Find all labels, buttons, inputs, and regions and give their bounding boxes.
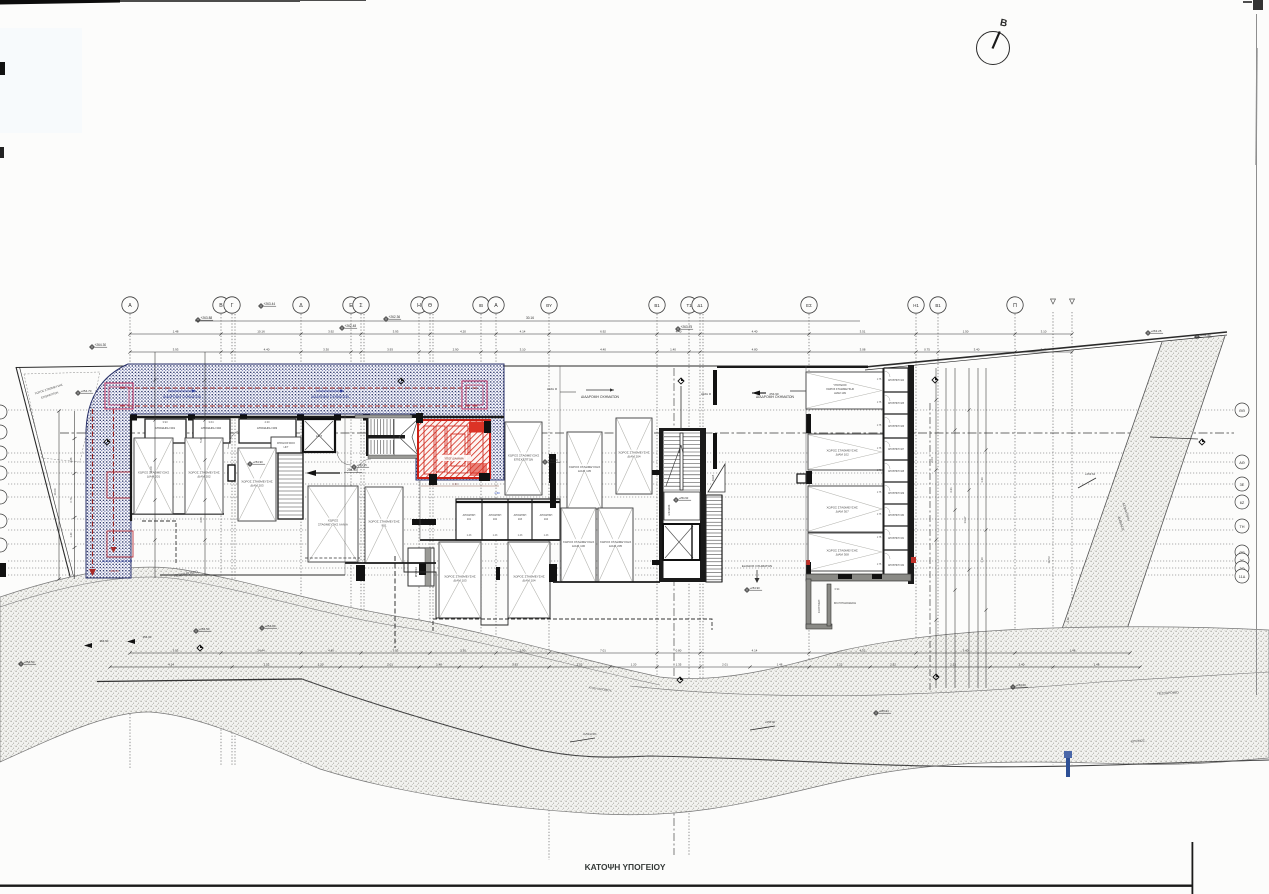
svg-text:3.30: 3.30 [323,348,329,352]
svg-text:1.43: 1.43 [518,534,523,537]
svg-text:ΚΑΤΟΨΗ ΥΠΟΓΕΙΟΥ: ΚΑΤΟΨΗ ΥΠΟΓΕΙΟΥ [585,862,666,872]
svg-text:+254.00: +254.00 [265,624,276,628]
svg-text:0.74: 0.74 [70,497,73,502]
svg-text:6Ζ: 6Ζ [1240,501,1245,505]
svg-text:Γ: Γ [231,303,234,309]
svg-text:B: B [219,303,223,309]
svg-text:1.50: 1.50 [494,491,500,495]
svg-text:103: 103 [518,518,523,521]
svg-text:ΘΥ: ΘΥ [546,303,552,308]
svg-text:ΘΕΣΗ Μ: ΘΕΣΗ Μ [547,387,557,391]
svg-text:0.75: 0.75 [924,348,930,352]
svg-text:3.40: 3.40 [963,649,969,653]
svg-text:7.01: 7.01 [600,649,606,653]
svg-text:1.75: 1.75 [877,492,882,494]
svg-text:+262.48: +262.48 [345,324,357,328]
svg-text:+263.64: +263.64 [1085,472,1096,476]
svg-text:2.52: 2.52 [264,663,270,667]
svg-text:0.94: 0.94 [835,588,840,591]
svg-text:14.67: 14.67 [963,516,967,523]
svg-text:ΑΝΕΒ: ΑΝΕΒ [712,474,715,481]
svg-text:A: A [494,303,498,309]
svg-text:4.30: 4.30 [452,482,458,486]
svg-text:ΑΠΟΘΗΚΗ 328: ΑΠΟΘΗΚΗ 328 [888,470,905,473]
svg-text:254.50: 254.50 [100,639,109,643]
svg-text:4.40: 4.40 [752,330,758,334]
svg-text:4.52: 4.52 [860,649,866,653]
svg-text:ΑΠΟΘΗΚΗ 324: ΑΠΟΘΗΚΗ 324 [888,379,905,382]
svg-text:ΕΣ: ΕΣ [806,303,812,308]
svg-text:1.40: 1.40 [670,348,676,352]
svg-text:5.60: 5.60 [199,437,203,443]
svg-text:3.92: 3.92 [328,330,334,334]
svg-text:ΔΙΑΜ 201: ΔΙΑΜ 201 [147,475,161,479]
svg-text:ΔΙΑΜ 105: ΔΙΑΜ 105 [578,469,592,473]
svg-text:1.75: 1.75 [877,402,882,404]
svg-text:+263.88: +263.88 [201,316,213,320]
svg-text:+253.70: +253.70 [109,569,119,573]
svg-text:1.75: 1.75 [877,448,882,450]
svg-text:3E: 3E [1240,483,1245,487]
svg-text:ΑΠΟΘΗΚΗ 331: ΑΠΟΘΗΚΗ 331 [888,537,905,540]
svg-text:4.20: 4.20 [460,330,466,334]
svg-text:+254.90: +254.90 [548,458,559,462]
svg-text:ΔΙΑΜ 307: ΔΙΑΜ 307 [836,510,850,514]
svg-text:LIFT: LIFT [284,447,289,449]
svg-text:Δ: Δ [299,303,303,309]
svg-text:ΤΗ: ΤΗ [1239,525,1244,529]
svg-text:2.40: 2.40 [1019,663,1025,667]
svg-text:3.10: 3.10 [1041,330,1047,334]
svg-text:ΕΙΣΟΔΟΣ: ΕΙΣΟΔΟΣ [668,504,671,515]
svg-text:3.51: 3.51 [860,330,866,334]
svg-text:1.48: 1.48 [173,330,179,334]
svg-text:4.14: 4.14 [520,330,526,334]
svg-text:2.01: 2.01 [722,663,728,667]
svg-text:3.64: 3.64 [208,420,214,424]
svg-text:1.36: 1.36 [980,477,984,483]
svg-text:2.90: 2.90 [520,649,526,653]
svg-text:+264.30: +264.30 [1200,333,1211,337]
svg-text:ΔΙΑΜ 203: ΔΙΑΜ 203 [250,483,264,487]
svg-text:ΔΙΑΜ 104: ΔΙΑΜ 104 [522,579,536,583]
svg-text:ΑΠΟΘΗΚΗ 332: ΑΠΟΘΗΚΗ 332 [888,564,905,567]
svg-text:1.75: 1.75 [877,537,882,539]
svg-text:ΕΞΟΔΟΣ ΟΧΗΜΑΤΩΝ: ΕΞΟΔΟΣ ΟΧΗΜΑΤΩΝ [102,559,132,563]
svg-text:3.93: 3.93 [173,348,179,352]
svg-text:2.04: 2.04 [930,457,934,463]
svg-text:H: H [417,303,421,309]
svg-text:1.50: 1.50 [963,330,969,334]
svg-text:+262.36: +262.36 [389,315,401,319]
svg-text:ΥΠΟΓΕΙΟΣ: ΥΠΟΓΕΙΟΣ [833,383,847,387]
svg-text:+254.70: +254.70 [81,389,92,393]
svg-text:3.93: 3.93 [162,420,168,424]
svg-text:ΕΞΟΔΟΣ ΟΧΗΜΑΤΩΝ: ΕΞΟΔΟΣ ΟΧΗΜΑΤΩΝ [742,564,772,568]
svg-text:ΑΠΟΘΗΚΗ 302: ΑΠΟΘΗΚΗ 302 [201,426,222,430]
svg-text:1.43: 1.43 [467,534,472,537]
svg-text:ΔΙΑΜ 308: ΔΙΑΜ 308 [836,553,850,557]
svg-text:4.80: 4.80 [752,348,758,352]
svg-text:4.40: 4.40 [600,348,606,352]
svg-text:2.52: 2.52 [890,663,896,667]
svg-text:+263.25: +263.25 [1151,329,1162,333]
svg-text:1.48: 1.48 [1070,649,1076,653]
svg-text:1.48: 1.48 [777,663,783,667]
svg-text:101: 101 [467,518,472,521]
svg-text:ΜΗΧΑΝΟΣΤΑΣΙΟ: ΜΗΧΑΝΟΣΤΑΣΙΟ [277,442,295,445]
svg-text:ΧΩΡΟΣ ΣΤΑΘΜΕΥΣΗΣ: ΧΩΡΟΣ ΣΤΑΘΜΕΥΣΗΣ [826,387,854,391]
svg-text:1.48: 1.48 [1094,663,1100,667]
svg-text:254.90: 254.90 [769,392,779,396]
svg-text:1.75: 1.75 [877,425,882,427]
svg-text:19.53: 19.53 [1047,556,1051,563]
svg-text:4.14: 4.14 [168,663,174,667]
svg-text:ΔΡΟΜΟΣ: ΔΡΟΜΟΣ [1131,739,1145,744]
svg-text:+254.90: +254.90 [679,496,689,500]
svg-text:4.40: 4.40 [328,649,334,653]
svg-text:+254.50: +254.50 [24,660,35,664]
svg-text:3.93: 3.93 [393,330,399,334]
svg-text:+255.90: +255.90 [765,720,776,724]
svg-text:3.93: 3.93 [387,348,393,352]
svg-text:901: 901 [381,524,386,528]
svg-text:1.75: 1.75 [877,379,882,381]
svg-text:Η1: Η1 [913,303,919,308]
svg-text:2.52: 2.52 [577,663,583,667]
svg-text:3.00: 3.00 [199,517,203,523]
svg-text:ΣΤΑΘΜΕΥΣΗΣ ΛΑΝΙΑ: ΣΤΑΘΜΕΥΣΗΣ ΛΑΝΙΑ [318,523,348,527]
svg-text:+263.00: +263.00 [1016,683,1027,687]
svg-text:1.43: 1.43 [493,534,498,537]
svg-text:4.16: 4.16 [1066,617,1070,623]
svg-text:ΑΠΟΘΗΚΗ 303: ΑΠΟΘΗΚΗ 303 [257,426,278,430]
svg-text:16.00: 16.00 [53,488,57,495]
svg-text:ΑΠΟΘΗΚΗ 325: ΑΠΟΘΗΚΗ 325 [888,402,905,405]
svg-text:+255.04: +255.04 [879,709,890,713]
svg-text:4.14: 4.14 [752,649,758,653]
svg-text:Δ1: Δ1 [697,303,703,308]
svg-text:254.90: 254.90 [347,468,357,472]
svg-text:10.16: 10.16 [257,330,265,334]
svg-text:ΑΠΟΘΗΚΗ: ΑΠΟΘΗΚΗ [514,514,527,517]
svg-text:ΔΙΑΜ 202: ΔΙΑΜ 202 [197,475,211,479]
svg-text:3.30: 3.30 [460,649,466,653]
svg-text:Θ: Θ [428,303,432,309]
svg-text:1.75: 1.75 [877,514,882,516]
svg-text:Β1: Β1 [935,303,941,308]
svg-text:ΑΠΟΘΗΚΗ 330: ΑΠΟΘΗΚΗ 330 [888,514,905,517]
svg-text:ΣΚΟΥΠΙΔΟΤ.: ΣΚΟΥΠΙΔΟΤ. [818,599,821,613]
svg-text:+254.95: +254.95 [357,463,368,467]
svg-text:+254.50: +254.50 [199,627,210,631]
svg-text:16.00: 16.00 [149,466,153,473]
svg-text:Β1: Β1 [654,303,660,308]
svg-text:ΚΛΙΣΗ 5%: ΚΛΙΣΗ 5% [583,732,597,736]
svg-text:ΔΙΑΜ 103: ΔΙΑΜ 103 [453,579,467,583]
svg-text:3.66: 3.66 [70,457,73,462]
svg-text:1.20: 1.20 [631,663,637,667]
svg-text:ΔΙΑΔΡΟΜΗ ΟΧΗΜΑΤΩΝ: ΔΙΑΔΡΟΜΗ ΟΧΗΜΑΤΩΝ [581,395,620,399]
svg-text:3.40: 3.40 [974,348,980,352]
svg-text:+254.90: +254.90 [750,586,761,590]
svg-text:3.93: 3.93 [512,663,518,667]
svg-text:ΑΠΟΘΗΚΗ 329: ΑΠΟΘΗΚΗ 329 [888,492,905,495]
svg-text:3.93: 3.93 [173,649,179,653]
svg-text:ΥΠΟΓ ΔΙΑΜ/ΜΑ: ΥΠΟΓ ΔΙΑΜ/ΜΑ [444,457,463,461]
svg-text:Σ: Σ [359,303,362,309]
svg-text:0.80: 0.80 [676,649,682,653]
svg-text:ΔΙΑΜ 205: ΔΙΑΜ 205 [609,544,623,548]
svg-text:ΘΕΣΗ Μ: ΘΕΣΗ Μ [701,392,711,396]
svg-text:1.48: 1.48 [436,663,442,667]
svg-text:1.20: 1.20 [318,663,324,667]
svg-text:104: 104 [544,518,549,521]
svg-text:+263.75: +263.75 [681,325,693,329]
svg-text:ΔΙΑΔΡΟΜΗ ΟΧΗΜΑΤΩΝ: ΔΙΑΔΡΟΜΗ ΟΧΗΜΑΤΩΝ [163,395,202,399]
svg-text:A: A [128,303,132,309]
svg-text:1.75: 1.75 [877,470,882,472]
svg-text:11Δ: 11Δ [1239,575,1246,579]
svg-text:2.90: 2.90 [453,348,459,352]
svg-text:6.92: 6.92 [600,330,606,334]
svg-text:2.01: 2.01 [387,663,393,667]
svg-text:ΔΙΑΜ 204: ΔΙΑΜ 204 [627,455,641,459]
svg-text:1.10: 1.10 [980,557,984,563]
svg-text:102: 102 [493,518,498,521]
svg-text:ΘΘ: ΘΘ [1239,409,1245,413]
svg-text:3.08: 3.08 [860,348,866,352]
svg-text:ΣΚΟΥΠΙΔΟΘΗΚΗ: ΣΚΟΥΠΙΔΟΘΗΚΗ [834,601,856,605]
svg-text:1.22: 1.22 [837,663,843,667]
svg-text:4.30: 4.30 [264,420,270,424]
svg-text:1.75: 1.75 [877,564,882,566]
svg-text:+254.90: +254.90 [253,460,264,464]
svg-text:2.13: 2.13 [950,663,956,667]
svg-text:3.31: 3.31 [949,487,953,493]
svg-text:1.43: 1.43 [544,534,549,537]
svg-text:ΑΠΟΘΗΚΗ: ΑΠΟΘΗΚΗ [463,514,476,517]
svg-text:ΔΙΑΜ 106: ΔΙΑΜ 106 [572,544,586,548]
svg-text:3.93: 3.93 [393,649,399,653]
svg-text:LIFT: LIFT [316,434,322,438]
svg-text:ΙΒ: ΙΒ [479,303,483,308]
svg-text:ΑΠΟΘΗΚΗ 326: ΑΠΟΘΗΚΗ 326 [888,425,905,428]
svg-text:1.40: 1.40 [70,532,73,537]
svg-text:ΑΠΟΘΗΚΗ 301: ΑΠΟΘΗΚΗ 301 [155,426,176,430]
svg-text:30.16: 30.16 [526,316,534,320]
svg-text:ΑΠΟΘΗΚΗ: ΑΠΟΘΗΚΗ [540,514,553,517]
svg-text:ΑΘ: ΑΘ [1239,461,1244,465]
svg-text:ΔΙΑΜ 102: ΔΙΑΜ 102 [836,453,850,457]
svg-text:+264.30: +264.30 [95,343,107,347]
svg-text:254.00: 254.00 [143,635,152,639]
svg-text:ΑΠΟΘΗΚΗ 327: ΑΠΟΘΗΚΗ 327 [888,448,905,451]
svg-text:ΔΙΑΜ 109: ΔΙΑΜ 109 [834,391,846,395]
svg-text:4.40: 4.40 [264,348,270,352]
svg-text:1.35: 1.35 [676,663,682,667]
svg-text:ΕΠΙΣΚΕΠΤΩΝ: ΕΠΙΣΚΕΠΤΩΝ [514,457,533,461]
svg-text:Τ1: Τ1 [686,303,692,308]
svg-text:ΑΠΟΘΗΚΗ: ΑΠΟΘΗΚΗ [489,514,502,517]
svg-text:+263.44: +263.44 [264,302,276,306]
svg-text:ΔΙΑΔΡΟΜΗ ΟΧΗΜΑΤΩΝ: ΔΙΑΔΡΟΜΗ ΟΧΗΜΑΤΩΝ [311,395,350,399]
svg-text:Π: Π [1013,303,1017,309]
svg-text:3.10: 3.10 [520,348,526,352]
svg-text:24.44: 24.44 [257,649,265,653]
